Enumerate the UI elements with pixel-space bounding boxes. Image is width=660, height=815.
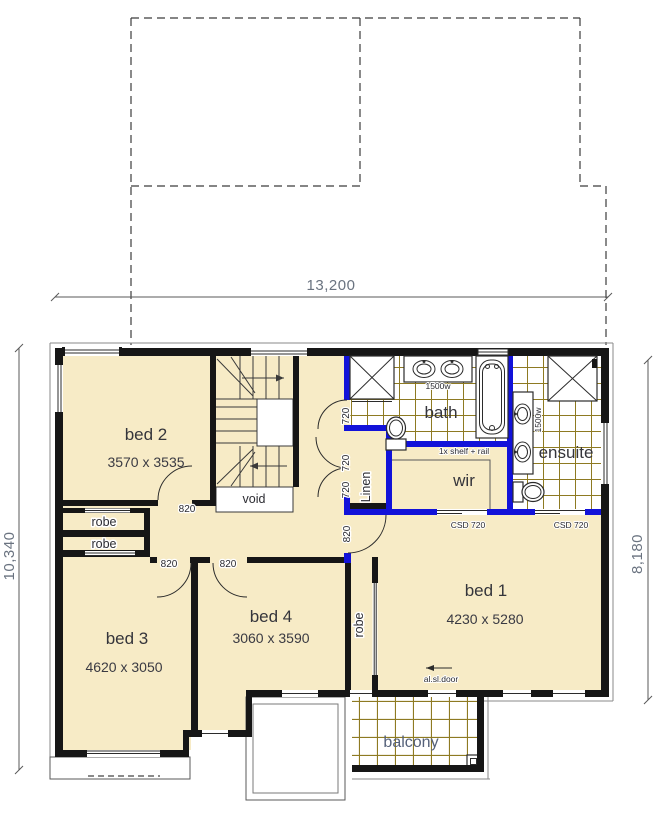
robe-label-1: robe bbox=[91, 515, 116, 529]
door-width-820-bed4: 820 bbox=[220, 559, 237, 570]
door-width-820-bed1: 820 bbox=[342, 525, 353, 542]
robe-label-bed1: robe bbox=[352, 612, 366, 637]
ensuite-toilet-icon bbox=[513, 482, 544, 502]
dimension-right-label: 8,180 bbox=[629, 534, 646, 574]
csd-720-wir: CSD 720 bbox=[451, 520, 486, 530]
bed2-label: bed 2 bbox=[125, 425, 168, 444]
ensuite-label: ensuite bbox=[539, 443, 594, 462]
door-width-820-bed3: 820 bbox=[161, 559, 178, 570]
dimension-top: 13,200 bbox=[51, 277, 612, 301]
bath-top-window bbox=[478, 349, 508, 355]
door-width-720-linen2: 720 bbox=[341, 481, 352, 498]
dimension-top-label: 13,200 bbox=[307, 277, 356, 294]
bed4-size: 3060 x 3590 bbox=[232, 630, 309, 646]
bed4-alcove-window bbox=[202, 730, 228, 737]
bed3-size: 4620 x 3050 bbox=[85, 659, 162, 675]
vanity-1500w-bath: 1500w bbox=[425, 381, 451, 391]
wir-label: wir bbox=[452, 471, 475, 490]
floor-plan-drawing: 13,200 10,340 8,180 bbox=[0, 0, 660, 815]
ground-floor-dashed-outline bbox=[131, 18, 606, 345]
dimension-left-label: 10,340 bbox=[1, 532, 18, 581]
balcony-label: balcony bbox=[383, 734, 438, 751]
bed3-label: bed 3 bbox=[106, 629, 149, 648]
ensuite-vanity-icon bbox=[513, 392, 533, 474]
bed1-label: bed 1 bbox=[465, 581, 508, 600]
linen-label: Linen bbox=[359, 472, 373, 503]
bath-vanity-icon bbox=[404, 356, 472, 382]
bed3-bottom-window bbox=[87, 750, 160, 757]
balcony-floor-tiles bbox=[352, 697, 477, 765]
vanity-1500w-ensuite: 1500w bbox=[533, 407, 543, 433]
bed4-bottom-window bbox=[282, 690, 318, 697]
bed2-top-window bbox=[62, 347, 122, 356]
floor-plan-canvas: 13,200 10,340 8,180 bbox=[0, 0, 660, 815]
bathtub-icon bbox=[476, 356, 508, 438]
dimension-left: 10,340 bbox=[1, 344, 23, 774]
stair-top-window bbox=[248, 348, 310, 356]
sliding-door-note: al.sl.door bbox=[424, 674, 459, 684]
door-width-720-linen1: 720 bbox=[341, 454, 352, 471]
dimension-right: 8,180 bbox=[629, 356, 652, 704]
bed4-label: bed 4 bbox=[250, 607, 293, 626]
door-width-820-bed2: 820 bbox=[179, 504, 196, 515]
csd-720-ensuite: CSD 720 bbox=[554, 520, 589, 530]
void-label: void bbox=[243, 492, 266, 506]
bath-shower-icon bbox=[350, 356, 394, 402]
bath-label: bath bbox=[424, 403, 457, 422]
ensuite-shower-icon bbox=[548, 356, 597, 401]
bath-toilet-icon bbox=[386, 417, 406, 450]
robe-label-2: robe bbox=[91, 537, 116, 551]
stair-void-opening bbox=[257, 399, 293, 446]
bed2-size: 3570 x 3535 bbox=[107, 454, 184, 470]
bed1-right-window bbox=[601, 420, 609, 487]
door-width-720-bath: 720 bbox=[341, 407, 352, 424]
shelf-rail-note: 1x shelf + rail bbox=[439, 446, 489, 456]
bed2-left-window bbox=[55, 362, 63, 415]
bed1-size: 4230 x 5280 bbox=[446, 611, 523, 627]
